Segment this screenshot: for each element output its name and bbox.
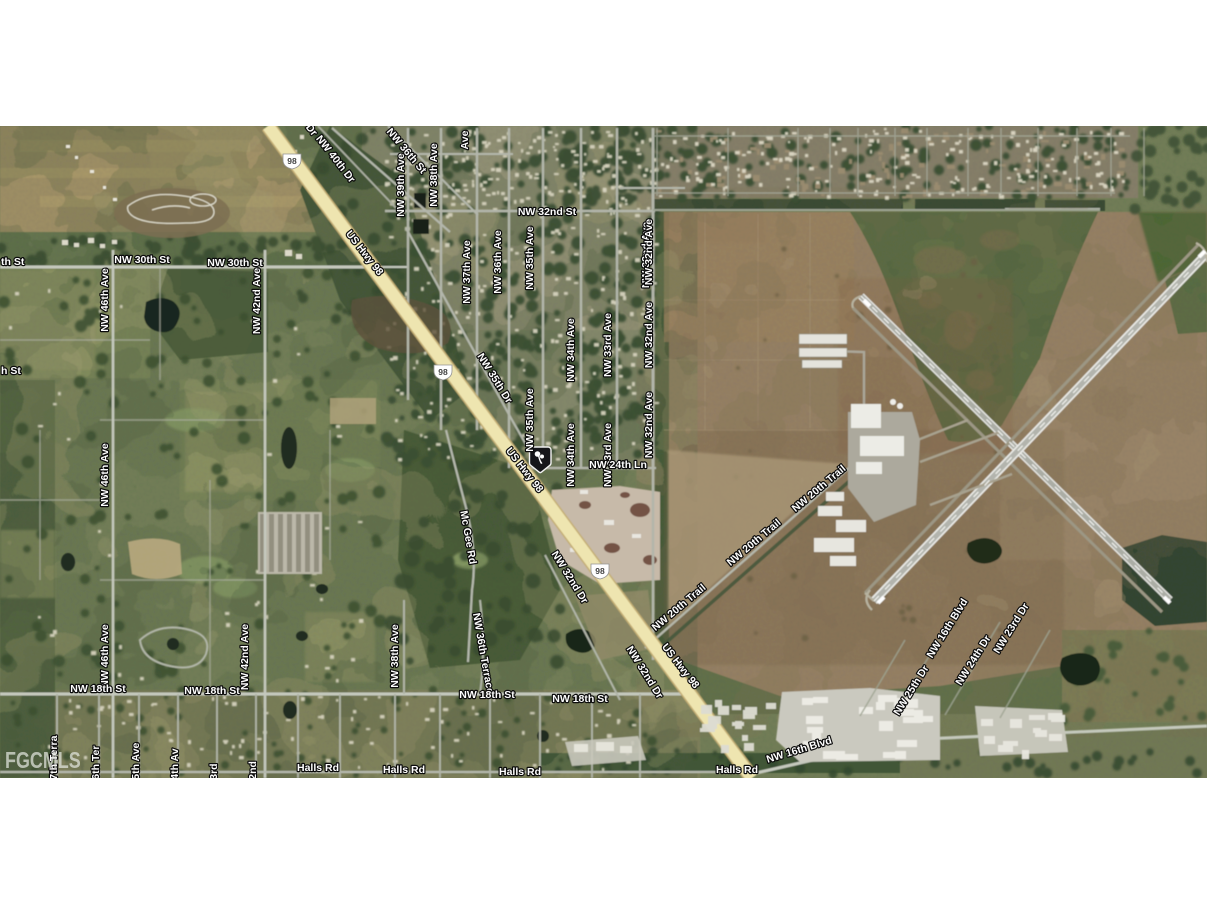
svg-text:FGCMLS: FGCMLS (5, 748, 81, 774)
